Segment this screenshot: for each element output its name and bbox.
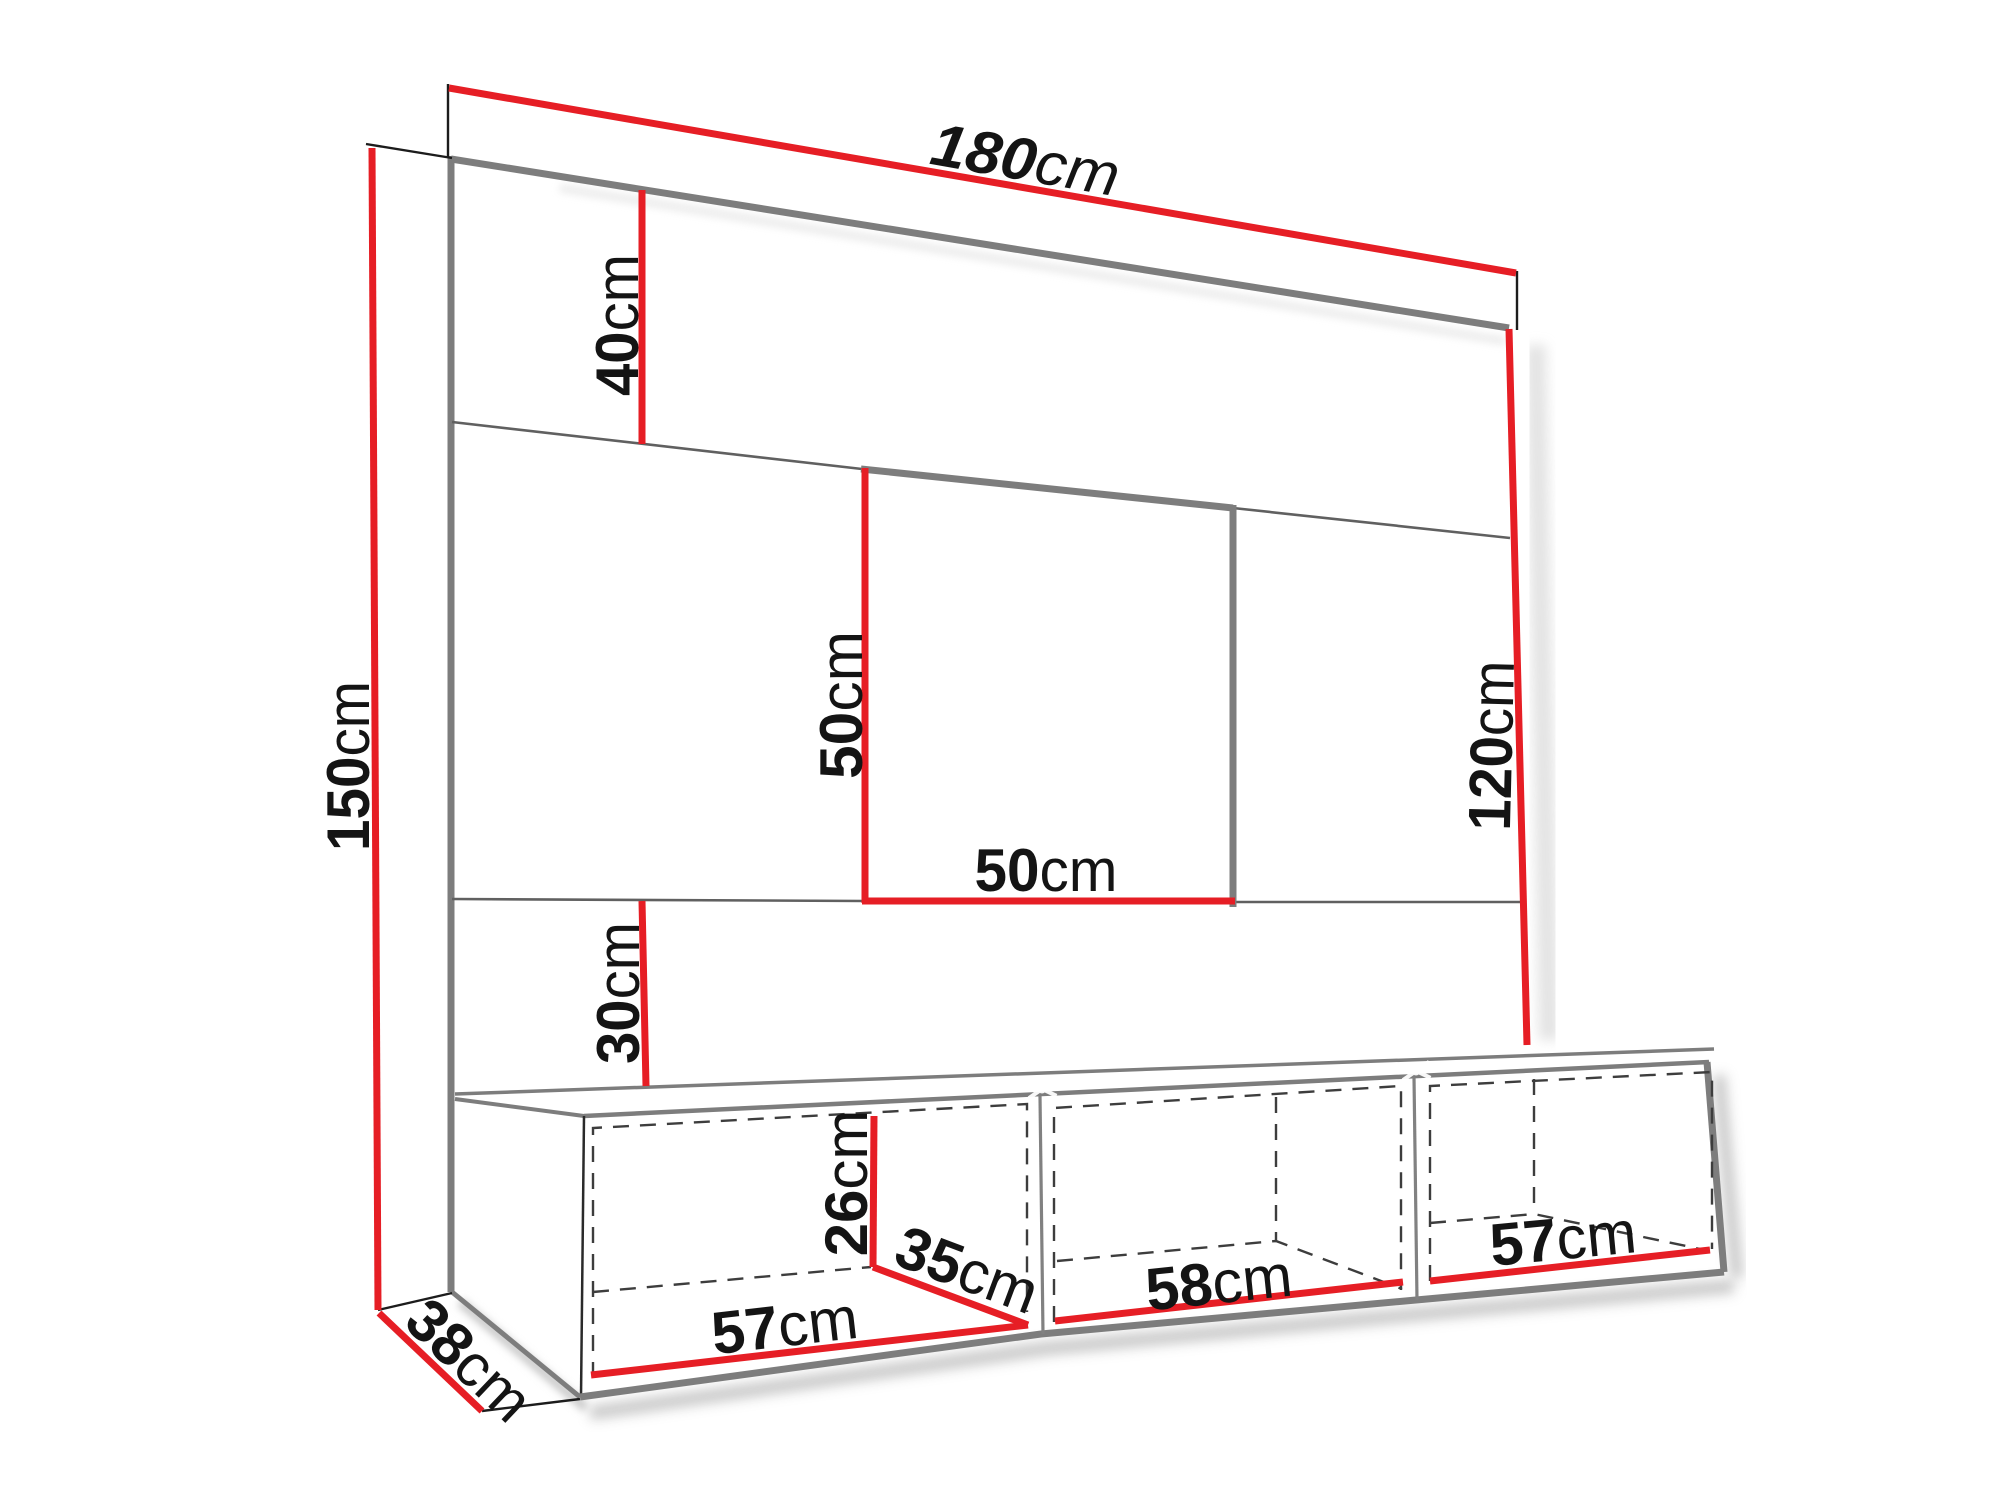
svg-text:26cm: 26cm — [813, 1110, 880, 1257]
svg-text:30cm: 30cm — [585, 922, 652, 1064]
svg-text:50cm: 50cm — [975, 837, 1118, 904]
svg-text:57cm: 57cm — [1487, 1198, 1639, 1279]
svg-text:50cm: 50cm — [808, 631, 875, 779]
svg-text:40cm: 40cm — [584, 254, 651, 396]
svg-text:120cm: 120cm — [1456, 660, 1527, 832]
svg-text:150cm: 150cm — [315, 681, 382, 851]
